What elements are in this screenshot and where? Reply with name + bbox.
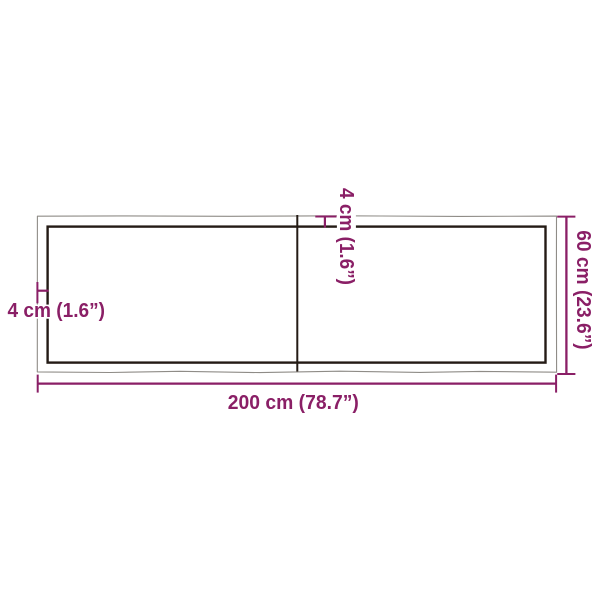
svg-text:4 cm (1.6”): 4 cm (1.6”) [8, 300, 106, 322]
svg-text:60 cm (23.6”): 60 cm (23.6”) [572, 230, 594, 350]
svg-text:4 cm (1.6”): 4 cm (1.6”) [335, 188, 357, 285]
svg-text:200 cm (78.7”): 200 cm (78.7”) [228, 392, 359, 414]
